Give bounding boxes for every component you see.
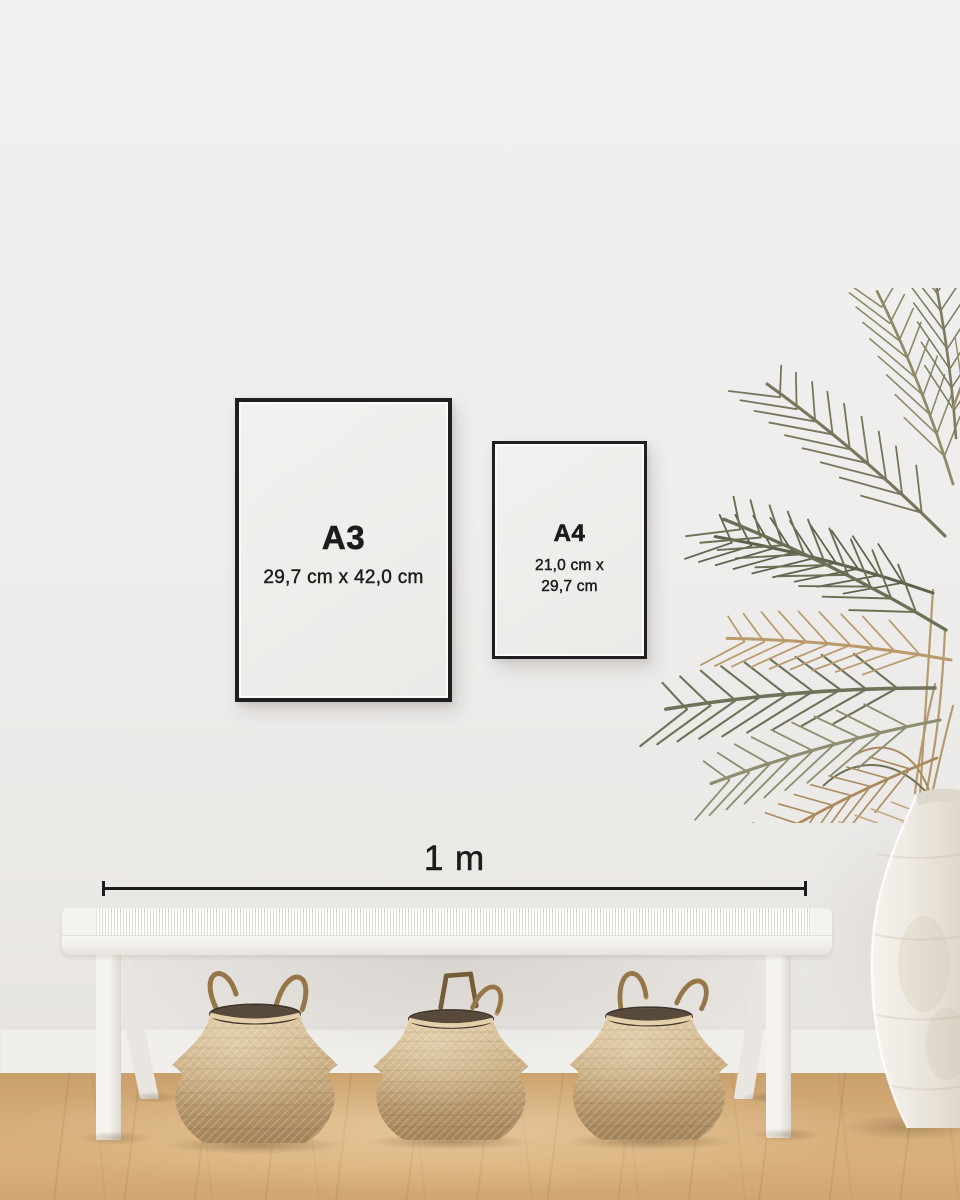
poster-frame-a4: A4 21,0 cm x 29,7 cm: [492, 441, 647, 659]
white-ceramic-vase: [862, 784, 960, 1136]
room-scene: A3 29,7 cm x 42,0 cm A4 21,0 cm x 29,7 c…: [0, 0, 960, 1200]
poster-frame-a3: A3 29,7 cm x 42,0 cm: [235, 398, 452, 702]
seagrass-basket-right: [558, 938, 740, 1153]
leg-shadow: [752, 1128, 822, 1142]
poster-a3-label: A3: [322, 519, 365, 557]
leg-shadow: [80, 1131, 150, 1145]
seagrass-basket-middle: [362, 942, 540, 1153]
measurement-line: [102, 887, 807, 890]
measurement-label: 1 m: [102, 839, 807, 879]
poster-a4-dimensions-line1: 21,0 cm x: [535, 556, 604, 577]
poster-a4-dimensions: 21,0 cm x 29,7 cm: [535, 556, 604, 598]
poster-a4-dimensions-line2: 29,7 cm: [535, 577, 604, 598]
poster-a3-dimensions-line: 29,7 cm x 42,0 cm: [263, 567, 423, 589]
bench-leg-front-left: [96, 952, 121, 1140]
bench-weave: [96, 908, 810, 935]
dried-palm-plant: [615, 288, 960, 823]
bench-leg-front-right: [766, 952, 791, 1138]
poster-a3-dimensions: 29,7 cm x 42,0 cm: [263, 567, 423, 589]
poster-a4-label: A4: [554, 520, 586, 548]
seagrass-basket-left: [160, 932, 350, 1157]
